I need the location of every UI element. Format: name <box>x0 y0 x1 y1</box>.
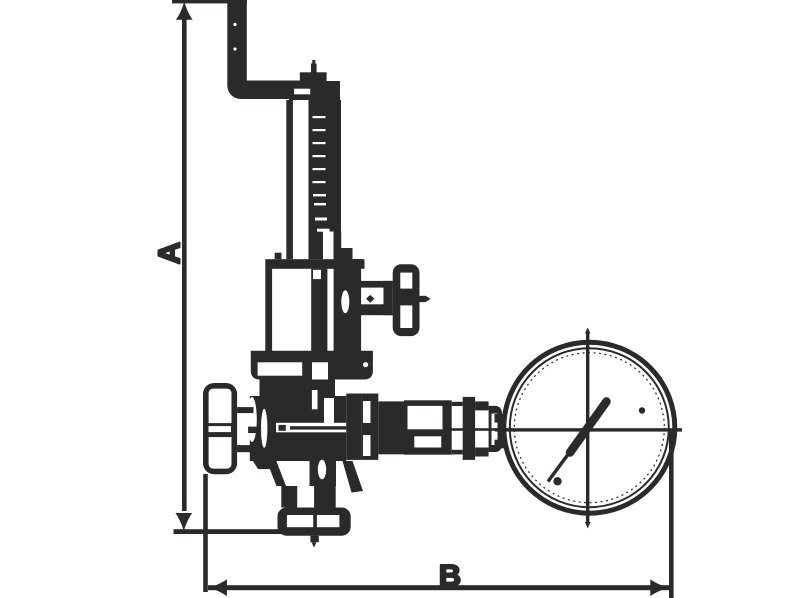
svg-text:B: B <box>439 558 461 593</box>
svg-text:A: A <box>152 242 187 264</box>
